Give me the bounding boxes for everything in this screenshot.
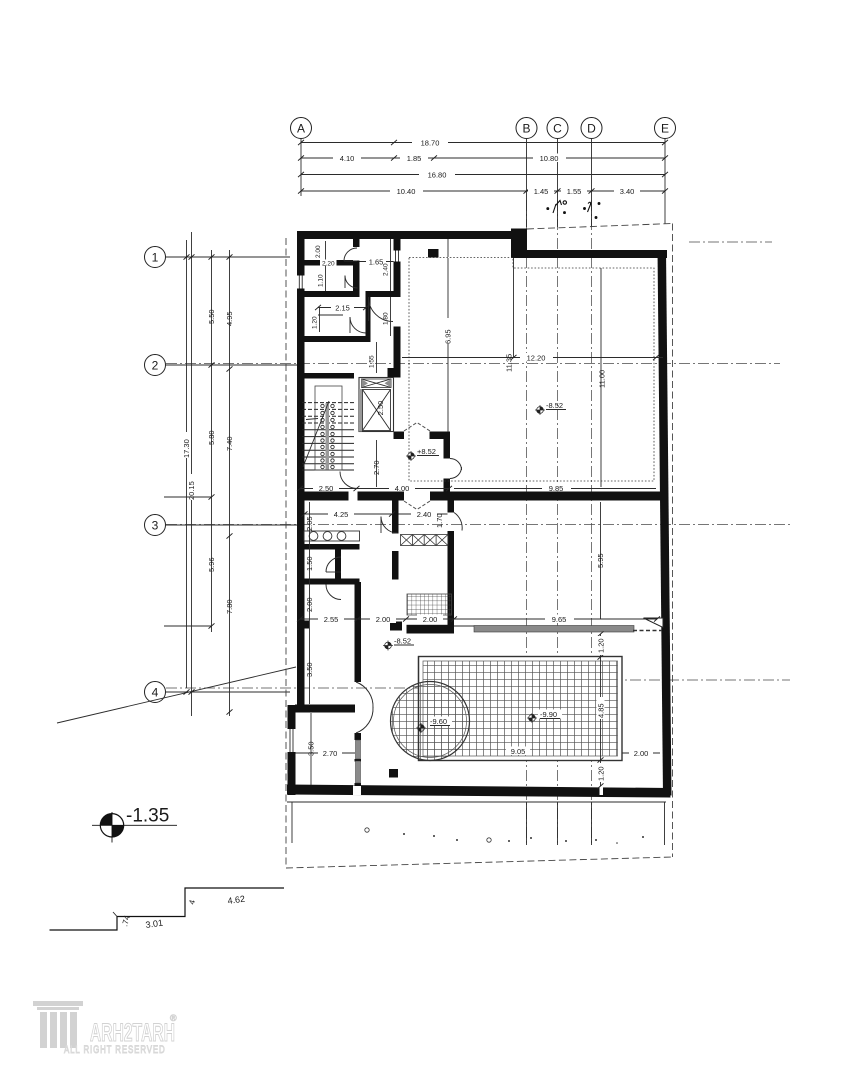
svg-text:11.35: 11.35 bbox=[505, 354, 514, 372]
svg-text:2.70: 2.70 bbox=[323, 749, 338, 758]
svg-text:4.95: 4.95 bbox=[225, 311, 234, 326]
svg-text:A: A bbox=[297, 122, 305, 136]
svg-text:-8.52: -8.52 bbox=[394, 637, 411, 646]
svg-text:1.20: 1.20 bbox=[312, 316, 319, 329]
svg-text:11.00: 11.00 bbox=[598, 370, 607, 388]
svg-text:2.15: 2.15 bbox=[335, 304, 350, 313]
svg-text:7.80: 7.80 bbox=[225, 599, 234, 614]
svg-text:10.80: 10.80 bbox=[540, 154, 559, 163]
svg-text:2.00: 2.00 bbox=[376, 615, 391, 624]
svg-text:C: C bbox=[553, 122, 562, 136]
svg-text:4.25: 4.25 bbox=[334, 510, 349, 519]
svg-text:2.40: 2.40 bbox=[417, 510, 432, 519]
svg-text:4.10: 4.10 bbox=[340, 154, 355, 163]
svg-text:-9.60: -9.60 bbox=[430, 717, 447, 726]
svg-text:2.50: 2.50 bbox=[319, 484, 334, 493]
svg-text:3.40: 3.40 bbox=[620, 187, 635, 196]
svg-text:3: 3 bbox=[152, 519, 159, 533]
svg-text:1.80: 1.80 bbox=[383, 312, 390, 325]
svg-text:2.00: 2.00 bbox=[423, 615, 438, 624]
svg-text:+8.52: +8.52 bbox=[417, 447, 436, 456]
svg-text:4: 4 bbox=[152, 686, 159, 700]
svg-text:®: ® bbox=[170, 1013, 177, 1023]
svg-text:1.20: 1.20 bbox=[597, 766, 606, 781]
svg-text:4.00: 4.00 bbox=[395, 484, 410, 493]
svg-text:D: D bbox=[587, 122, 596, 136]
svg-text:6.95: 6.95 bbox=[444, 329, 453, 344]
svg-text:4.85: 4.85 bbox=[597, 703, 606, 718]
svg-text:3.50: 3.50 bbox=[305, 662, 314, 677]
svg-text:5.80: 5.80 bbox=[207, 430, 216, 445]
svg-text:2: 2 bbox=[152, 359, 159, 373]
svg-text:2.55: 2.55 bbox=[324, 615, 339, 624]
svg-text:5.50: 5.50 bbox=[207, 309, 216, 324]
svg-text:1.65: 1.65 bbox=[369, 258, 384, 267]
svg-text:9.05: 9.05 bbox=[511, 747, 526, 756]
svg-text:1.55: 1.55 bbox=[369, 355, 376, 368]
svg-text:2.00: 2.00 bbox=[315, 245, 322, 258]
svg-text:3.50: 3.50 bbox=[307, 741, 316, 756]
svg-text:2.70: 2.70 bbox=[372, 460, 381, 475]
svg-text:-8.52: -8.52 bbox=[546, 401, 563, 410]
svg-text:2.00: 2.00 bbox=[305, 597, 314, 612]
svg-text:2.20: 2.20 bbox=[322, 261, 335, 268]
svg-text:E: E bbox=[661, 122, 669, 136]
svg-text:2.50: 2.50 bbox=[376, 401, 385, 416]
svg-text:1.50: 1.50 bbox=[305, 556, 314, 571]
svg-text:2.05: 2.05 bbox=[305, 516, 314, 531]
svg-text:1.10: 1.10 bbox=[318, 274, 325, 287]
svg-text:16.80: 16.80 bbox=[428, 171, 447, 180]
svg-text:-9.90: -9.90 bbox=[540, 710, 557, 719]
svg-text:1: 1 bbox=[152, 251, 159, 265]
svg-text:1.85: 1.85 bbox=[407, 154, 422, 163]
svg-text:17.30: 17.30 bbox=[182, 439, 191, 458]
svg-text:7.40: 7.40 bbox=[225, 436, 234, 451]
svg-text:-1.35: -1.35 bbox=[126, 806, 169, 827]
svg-text:12.20: 12.20 bbox=[527, 354, 546, 363]
svg-text:9.85: 9.85 bbox=[549, 484, 564, 493]
svg-text:1.20: 1.20 bbox=[597, 638, 606, 653]
svg-text:1.45: 1.45 bbox=[534, 187, 549, 196]
svg-text:1.70: 1.70 bbox=[435, 513, 444, 528]
svg-text:5.96: 5.96 bbox=[207, 557, 216, 572]
svg-text:ALL RIGHT RESERVED: ALL RIGHT RESERVED bbox=[64, 1044, 166, 1057]
svg-text:1.55: 1.55 bbox=[567, 187, 582, 196]
svg-text:2.40: 2.40 bbox=[383, 263, 390, 276]
svg-text:B: B bbox=[522, 122, 530, 136]
svg-text:9.65: 9.65 bbox=[552, 615, 567, 624]
svg-text:18.70: 18.70 bbox=[421, 139, 440, 148]
svg-text:10.40: 10.40 bbox=[397, 187, 416, 196]
svg-text:2.00: 2.00 bbox=[634, 749, 649, 758]
svg-text:5.95: 5.95 bbox=[596, 553, 605, 568]
